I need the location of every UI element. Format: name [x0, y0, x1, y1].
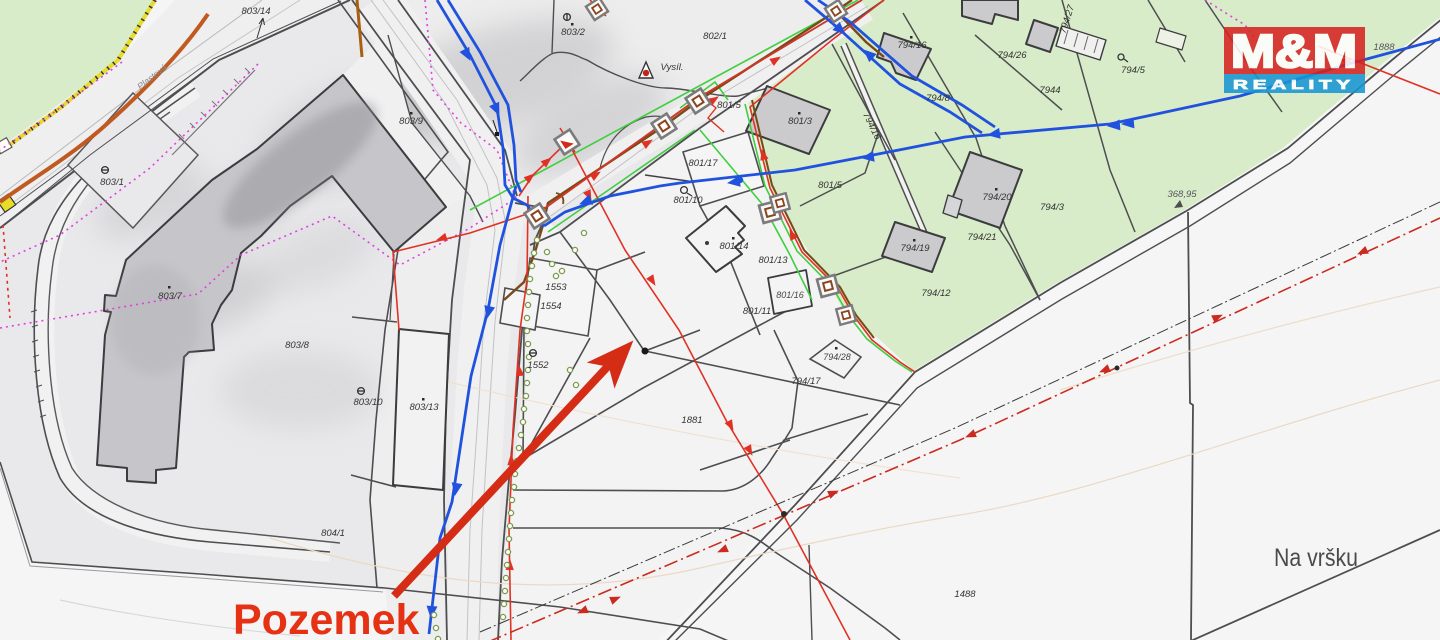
- svg-text:803/2: 803/2: [561, 27, 585, 38]
- svg-text:804/1: 804/1: [321, 528, 345, 539]
- svg-text:801/16: 801/16: [776, 290, 804, 300]
- svg-text:7944: 7944: [1039, 85, 1060, 96]
- svg-text:802/1: 802/1: [703, 31, 727, 42]
- svg-text:794/12: 794/12: [921, 288, 951, 299]
- svg-text:Pozemek: Pozemek: [233, 596, 420, 640]
- svg-text:Na vršku: Na vršku: [1274, 544, 1358, 572]
- svg-text:801/13: 801/13: [758, 255, 788, 266]
- svg-text:794/28: 794/28: [823, 352, 851, 362]
- svg-text:801/5: 801/5: [818, 180, 842, 191]
- svg-text:803/7: 803/7: [158, 291, 182, 302]
- svg-text:794/8: 794/8: [926, 93, 950, 104]
- svg-text:368,95: 368,95: [1167, 189, 1197, 200]
- svg-text:803/13: 803/13: [409, 402, 439, 413]
- svg-text:794/17: 794/17: [791, 376, 821, 387]
- svg-text:801/5: 801/5: [717, 100, 741, 111]
- svg-text:794/5: 794/5: [1121, 65, 1145, 76]
- svg-text:803/8: 803/8: [285, 340, 309, 351]
- svg-text:794/19: 794/19: [900, 243, 930, 254]
- svg-text:1554: 1554: [540, 301, 561, 312]
- svg-text:794/16: 794/16: [897, 40, 927, 51]
- svg-text:801/10: 801/10: [673, 195, 703, 206]
- svg-text:M&M: M&M: [1231, 25, 1357, 77]
- svg-text:803/1: 803/1: [100, 177, 124, 188]
- svg-text:REALITY: REALITY: [1233, 77, 1355, 92]
- svg-text:1552: 1552: [527, 360, 549, 371]
- svg-text:801/14: 801/14: [719, 241, 748, 252]
- svg-text:803/10: 803/10: [353, 397, 383, 408]
- svg-text:1553: 1553: [545, 282, 567, 293]
- svg-text:1488: 1488: [954, 589, 976, 600]
- svg-text:801/3: 801/3: [788, 116, 812, 127]
- svg-text:801/17: 801/17: [688, 158, 718, 169]
- svg-text:801/11: 801/11: [743, 306, 771, 317]
- svg-text:794/20: 794/20: [982, 192, 1012, 203]
- svg-text:794/26: 794/26: [997, 50, 1027, 61]
- svg-text:803/9: 803/9: [399, 116, 423, 127]
- svg-text:794/3: 794/3: [1040, 202, 1064, 213]
- svg-text:1888: 1888: [1373, 42, 1395, 53]
- svg-text:803/14: 803/14: [241, 6, 270, 17]
- svg-text:Vysíl.: Vysíl.: [660, 62, 683, 73]
- svg-text:1881: 1881: [681, 415, 702, 426]
- svg-text:794/21: 794/21: [967, 232, 996, 243]
